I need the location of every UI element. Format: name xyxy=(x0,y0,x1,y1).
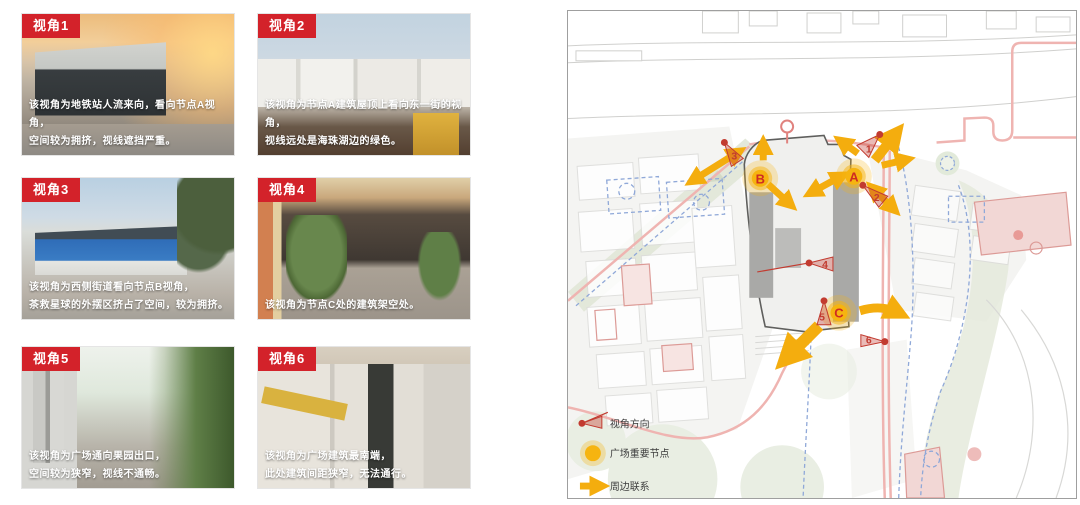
photo-card-2: 该视角为节点A建筑屋顶上看向东一街的视角， 视线远处是海珠湖边的绿色。 视角2 xyxy=(258,14,470,155)
photo-label-2: 视角2 xyxy=(258,14,316,38)
legend-plaza-node-label: 广场重要节点 xyxy=(610,447,670,460)
caption-line: 该视角为节点C处的建筑架空处。 xyxy=(265,297,465,315)
photo-caption-2: 该视角为节点A建筑屋顶上看向东一街的视角， 视线远处是海珠湖边的绿色。 xyxy=(265,97,465,151)
photo-label-1: 视角1 xyxy=(22,14,80,38)
legend-plaza-node-icon xyxy=(580,440,606,466)
viewpoint-2-label: 2 xyxy=(874,193,880,204)
legend-viewpoint-direction-label: 视角方向 xyxy=(610,417,650,430)
photo-card-4: 该视角为节点C处的建筑架空处。 视角4 xyxy=(258,178,470,319)
photo-caption-6: 该视角为广场建筑最南端， 此处建筑间距狭窄，无法通行。 xyxy=(265,448,465,484)
plaza-building-west xyxy=(749,192,773,298)
photo-caption-4: 该视角为节点C处的建筑架空处。 xyxy=(265,297,465,315)
node-a-label: A xyxy=(849,169,858,184)
node-b: B xyxy=(742,160,778,196)
viewpoint-1-label: 1 xyxy=(866,144,872,155)
photo-card-5: 该视角为广场通向果园出口， 空间较为狭窄，视线不通畅。 视角5 xyxy=(22,347,234,488)
viewpoint-4-label: 4 xyxy=(822,260,828,271)
site-map: B A C 1 2 3 xyxy=(568,11,1076,498)
legend-connection-label: 周边联系 xyxy=(610,481,650,493)
caption-line: 该视角为地铁站人流来向，看向节点A视角， xyxy=(29,97,229,133)
photo-caption-3: 该视角为西侧街道看向节点B视角， 茶救星球的外摆区挤占了空间，较为拥挤。 xyxy=(29,279,229,315)
photo-caption-1: 该视角为地铁站人流来向，看向节点A视角， 空间较为拥挤，视线遮挡严重。 xyxy=(29,97,229,151)
caption-line: 此处建筑间距狭窄，无法通行。 xyxy=(265,466,465,484)
node-b-label: B xyxy=(756,171,765,186)
caption-line: 该视角为节点A建筑屋顶上看向东一街的视角， xyxy=(265,97,465,133)
node-c-label: C xyxy=(834,306,843,321)
caption-line: 该视角为广场建筑最南端， xyxy=(265,448,465,466)
photo-label-5: 视角5 xyxy=(22,347,80,371)
photo-label-4: 视角4 xyxy=(258,178,316,202)
caption-line: 视线远处是海珠湖边的绿色。 xyxy=(265,133,465,151)
photo-card-6: 该视角为广场建筑最南端， 此处建筑间距狭窄，无法通行。 视角6 xyxy=(258,347,470,488)
caption-line: 该视角为西侧街道看向节点B视角， xyxy=(29,279,229,297)
photo-card-1: 该视角为地铁站人流来向，看向节点A视角， 空间较为拥挤，视线遮挡严重。 视角1 xyxy=(22,14,234,155)
caption-line: 该视角为广场通向果园出口， xyxy=(29,448,229,466)
site-map-panel: B A C 1 2 3 xyxy=(567,10,1077,499)
photo-label-3: 视角3 xyxy=(22,178,80,202)
photo-card-3: 该视角为西侧街道看向节点B视角， 茶救星球的外摆区挤占了空间，较为拥挤。 视角3 xyxy=(22,178,234,319)
viewpoint-6-label: 6 xyxy=(866,336,872,347)
caption-line: 茶救星球的外摆区挤占了空间，较为拥挤。 xyxy=(29,297,229,315)
viewpoint-3-label: 3 xyxy=(731,151,737,162)
caption-line: 空间较为狭窄，视线不通畅。 xyxy=(29,466,229,484)
caption-line: 空间较为拥挤，视线遮挡严重。 xyxy=(29,133,229,151)
viewpoint-5-label: 5 xyxy=(819,313,825,324)
plaza-building-center xyxy=(775,228,801,268)
slide: 该视角为地铁站人流来向，看向节点A视角， 空间较为拥挤，视线遮挡严重。 视角1 … xyxy=(0,0,1080,505)
photo-caption-5: 该视角为广场通向果园出口， 空间较为狭窄，视线不通畅。 xyxy=(29,448,229,484)
map-green-node-icon xyxy=(936,151,960,175)
photo-label-6: 视角6 xyxy=(258,347,316,371)
